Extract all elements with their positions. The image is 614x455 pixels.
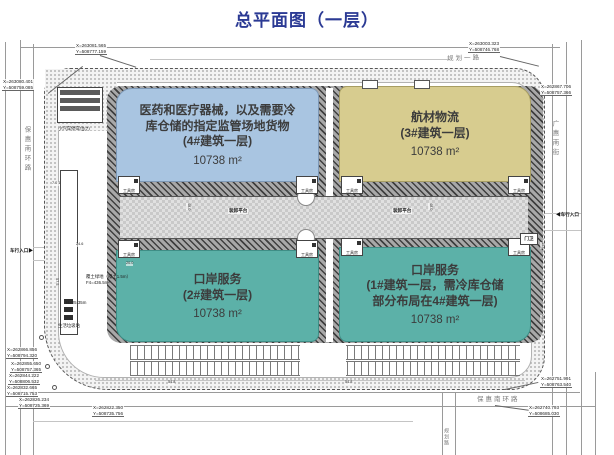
tool-room: 工具房 (508, 176, 530, 194)
small-annotation-box (414, 80, 430, 89)
building-1-area: 10738 m² (411, 314, 460, 326)
boundary-point (39, 335, 44, 340)
road-line-bottom-3 (33, 421, 413, 422)
building-2-area: 10738 m² (193, 308, 242, 320)
coord-callout: X=262832.665 Y=508715.753 (6, 385, 38, 397)
guard-house: 门卫 (520, 233, 538, 245)
coord-callout: X=263081.565 Y=508777.159 (75, 43, 107, 55)
utility-building-row (60, 98, 100, 103)
coord-callout: X=262751.991 Y=508763.540 (540, 376, 572, 388)
loading-platform-label-right: 装卸平台 (392, 208, 412, 214)
green-roof-note: 覆土绿地（覆土1.5m） F4=436.5m² (86, 274, 140, 285)
coord-callout: X=262740.793 Y=508685.030 (528, 405, 560, 417)
coord-callout: X=263080.401 Y=508759.085 (2, 79, 34, 91)
building-1-label: 口岸服务 (1#建筑一层，需冷库仓储 部分布局在4#建筑一层) (366, 263, 503, 310)
utility-building (57, 87, 103, 123)
coord-callout: X=262822.350 Y=508735.756 (92, 405, 124, 417)
coord-callout: X=262855.650 Y=508757.365 (10, 361, 42, 373)
tool-room: 工具房 (118, 176, 140, 194)
green-width-dim: 24.6 (76, 243, 83, 247)
coord-callout: X=262844.222 Y=508806.532 (8, 373, 40, 385)
tool-room: 工具房 (118, 240, 140, 258)
coord-callout: X=262867.706 Y=508757.366 (540, 84, 572, 96)
boundary-point (52, 385, 57, 390)
tool-room: 工具房 (341, 238, 363, 256)
road-name-bottom: 保惠南环路 (477, 393, 520, 403)
building-4-medical: 医药和医疗器械，以及需要冷 库仓储的指定监管场地货物 (4#建筑一层) 1073… (116, 88, 319, 182)
coord-callout: X=262866.856 Y=508794.320 (6, 347, 38, 359)
leader-line (100, 55, 136, 68)
boundary-point (45, 364, 50, 369)
internal-road-edge (95, 380, 525, 381)
road-line-right-4 (595, 372, 596, 455)
road-name-bottom-vertical: 规划路 (443, 428, 450, 446)
central-yard (120, 196, 528, 239)
left-mid-dim: 20.0 (126, 262, 133, 266)
coord-callout: X=263003.323 Y=508746.768 (468, 41, 500, 53)
left-narrow-building (60, 170, 78, 335)
building-3-aviation-logistics: 航材物流 (3#建筑一层) 10738 m² (339, 86, 531, 182)
utility-building-row (60, 90, 100, 95)
building-2-label: 口岸服务 (2#建筑一层) (183, 272, 252, 303)
tool-room: 工具房 (341, 176, 363, 194)
building-1-port-services: 口岸服务 (1#建筑一层，需冷库仓储 部分布局在4#建筑一层) 10738 m² (339, 247, 531, 342)
building-2-port-services: 口岸服务 (2#建筑一层) 10738 m² (116, 250, 319, 342)
road-line-bottom-vert-2 (455, 392, 456, 455)
utility-building-row (60, 106, 100, 111)
garbage-station-label: 生活垃圾站 (58, 323, 80, 329)
page-title: 总平面图（一层） (0, 6, 614, 31)
yard-dim-left: 48.0 (186, 203, 190, 210)
road-line-right-3 (581, 40, 582, 455)
small-annotation-box (362, 80, 378, 89)
site-plan-canvas: 总平面图（一层） 装卸平台 装卸平台 48.0 48.0 医药和医疗器械，以及需… (0, 0, 614, 455)
parking-gap (300, 344, 346, 376)
bottom-dim-1: 54.8 (168, 381, 175, 385)
building-4-label: 医药和医疗器械，以及需要冷 库仓储的指定监管场地货物 (4#建筑一层) (139, 103, 295, 150)
entrance-line-right-2 (545, 230, 581, 231)
road-line-right-2 (566, 42, 567, 455)
building-3-label: 航材物流 (3#建筑一层) (400, 110, 469, 141)
building-4-area: 10738 m² (193, 155, 242, 167)
road-line-right-1 (552, 44, 553, 455)
left-building-dim: 57.5 (54, 278, 58, 285)
loading-platform-label-left: 装卸平台 (228, 208, 248, 214)
leader-line (500, 56, 539, 67)
tool-room: 工具房 (296, 240, 318, 258)
garbage-bin (64, 307, 73, 312)
bottom-dim-2: 54.8 (345, 381, 352, 385)
garbage-bin (64, 315, 73, 320)
height-note: H=25.35m (66, 300, 86, 306)
road-name-left: 保惠南环路 (21, 126, 31, 174)
road-edge-top (150, 59, 450, 60)
right-dim-3: 20.0 (540, 315, 544, 322)
coord-callout: X=262826.234 Y=508725.369 (18, 397, 50, 409)
vehicle-entrance-left-label: 车行入口▶ (10, 248, 33, 254)
tool-room: 工具房 (296, 176, 318, 194)
parking-note: 小汽车停车位(7) (58, 126, 90, 132)
right-dim-1: 15.0 (540, 242, 544, 249)
yard-dim-right: 48.0 (428, 203, 432, 210)
right-dim-2: 3.0 (540, 280, 544, 285)
building-3-area: 10738 m² (411, 146, 460, 158)
vehicle-entrance-right-label: ◀车行入口 (556, 212, 579, 218)
road-name-right: 广惠南街 (549, 120, 559, 158)
